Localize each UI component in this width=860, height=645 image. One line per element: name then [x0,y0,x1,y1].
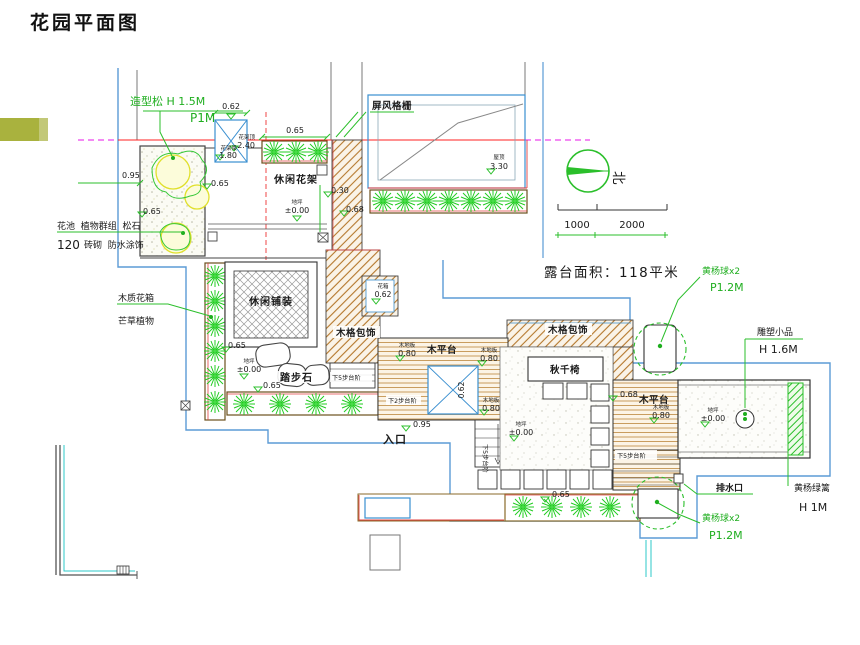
boxwood-ball-top-label: 黄杨球x2 [702,265,740,277]
garden-plan-page: 花园平面图 [0,0,860,645]
boxwood-ball-top-spec: P1.2M [710,281,744,294]
pergola-top-tag: 花架顶 [238,133,255,141]
dim-065-paving: 0.65 [228,341,246,350]
flowerbed-note1: 花池 植物群组 松石 [57,220,140,232]
column-marker-icon [181,401,190,410]
dim-062-top: 0.62 [222,102,240,111]
leisure-paving-label: 休闲铺装 [248,295,293,308]
steps5-label-center: 下5步台阶 [481,444,489,473]
wood-planter-box-label: 木质花箱 [118,292,154,304]
dim-065-bottom: 0.65 [552,490,570,499]
dim-065-bed-right: 0.65 [211,179,229,188]
flowerbed-note2b: 砖砌 防水涂饰 [84,239,144,251]
dim-068-rightdeck: 0.68 [620,390,638,399]
flowerbed-note2a: 120 [57,238,80,252]
wood-cladding-label-1: 木格包饰 [335,327,376,339]
roof-tag: 屋顶 [493,154,505,161]
sculpture-label: 雕塑小品 [757,326,793,338]
deck-tag-d: 木地板 [653,403,670,411]
pergola-label: 休闲花架 [273,173,318,186]
dim-065-bed-left: 0.65 [143,207,161,216]
ground-level-c: ±0.00 [509,428,534,437]
flower-bed [140,146,209,256]
steps5-label-left: 下5步台阶 [332,374,361,382]
deck-level-d: 0.80 [652,411,670,420]
drain-pipe-icon [646,540,651,577]
north-compass-icon: 北 [567,150,626,192]
boxwood-hedge-spec: H 1M [799,501,827,514]
scale-bar: 1000 2000 [555,204,668,238]
drain-icon [674,474,683,483]
stepping-stones-label: 踏步石 [280,371,313,384]
miscanthus-label: 芒草植物 [118,315,154,327]
page-title: 花园平面图 [30,8,140,35]
deck-level-c: 0.80 [482,404,500,413]
bottom-planter [505,494,640,521]
pergola-beam-level: 1.80 [219,151,237,160]
boxwood-ball-bottom-spec: P1.2M [709,529,743,542]
dim-095-entrance: 0.95 [413,420,431,429]
drain-label: 排水口 [716,482,743,494]
dim-030: 0.30 [331,186,349,195]
left-planter-strip [204,263,226,420]
dim-062-box: 0.62 [375,290,392,299]
scale-seg2: 2000 [619,220,644,231]
deck-tag-b: 木地板 [481,346,498,354]
spa-box-icon [428,366,478,414]
ground-tag-c: 地坪 [515,420,527,428]
shaped-pine-spec: P1M [190,111,215,125]
long-planter [370,190,527,213]
steps5-label-right: 下5步台阶 [617,452,646,460]
garden-plan-drawing: 北 1000 2000 造型松 H 1.5M P1M 屏风格栅 休闲花架 花池 … [0,0,860,645]
bottom-left-box [358,494,505,521]
boxwood-ball-top-icon [634,323,686,375]
screen-grille-label: 屏风格栅 [372,100,412,112]
boxwood-hedge-icon [788,383,803,455]
ground-tag-a: 地坪 [291,198,303,206]
scale-seg1: 1000 [564,220,589,231]
boxwood-ball-bottom-label: 黄杨球x2 [702,512,740,524]
ground-tag-b: 地坪 [243,357,255,365]
deck-tag-a: 木地板 [399,341,416,349]
dim-065-steppingstones: 0.65 [263,381,281,390]
swing-chair-label: 秋千椅 [549,364,580,376]
deck-tag-c: 木地板 [483,396,500,404]
ground-level-a: ±0.00 [285,206,310,215]
column-marker-icon [318,233,328,242]
north-label: 北 [610,171,626,186]
pergola-top-level: 2.40 [237,141,255,150]
deck-level-a: 0.80 [398,349,416,358]
top-planter [262,141,329,163]
steps2-label: 下2步台阶 [388,397,417,405]
dim-065-topplanter: 0.65 [286,126,304,135]
ground-level-d: ±0.00 [701,414,726,423]
terrace-area-note: 露台面积：118平米 [544,265,679,281]
wood-cladding-label-2: 木格包饰 [547,324,588,336]
shaped-pine-label: 造型松 H 1.5M [130,94,205,108]
dim-095-bed: 0.95 [122,171,140,180]
sculpture-platform [678,380,810,458]
roof-level: 3.30 [490,162,508,171]
accent-bar-light [39,118,48,141]
ground-tag-d: 地坪 [707,406,719,414]
wood-deck-label-1: 木平台 [426,344,457,356]
sculpture-spec: H 1.6M [759,343,798,356]
ground-level-b: ±0.00 [237,365,262,374]
dim-062-spa: 0.62 [457,381,466,398]
entrance-label: 入口 [383,433,407,446]
deck-level-b: 0.80 [480,354,498,363]
bottom-planter-strip [227,392,378,415]
planter-box-tag: 花箱 [377,282,389,290]
boxwood-hedge-label: 黄杨绿篱 [794,482,830,494]
dim-068-band: 0.68 [346,205,364,214]
